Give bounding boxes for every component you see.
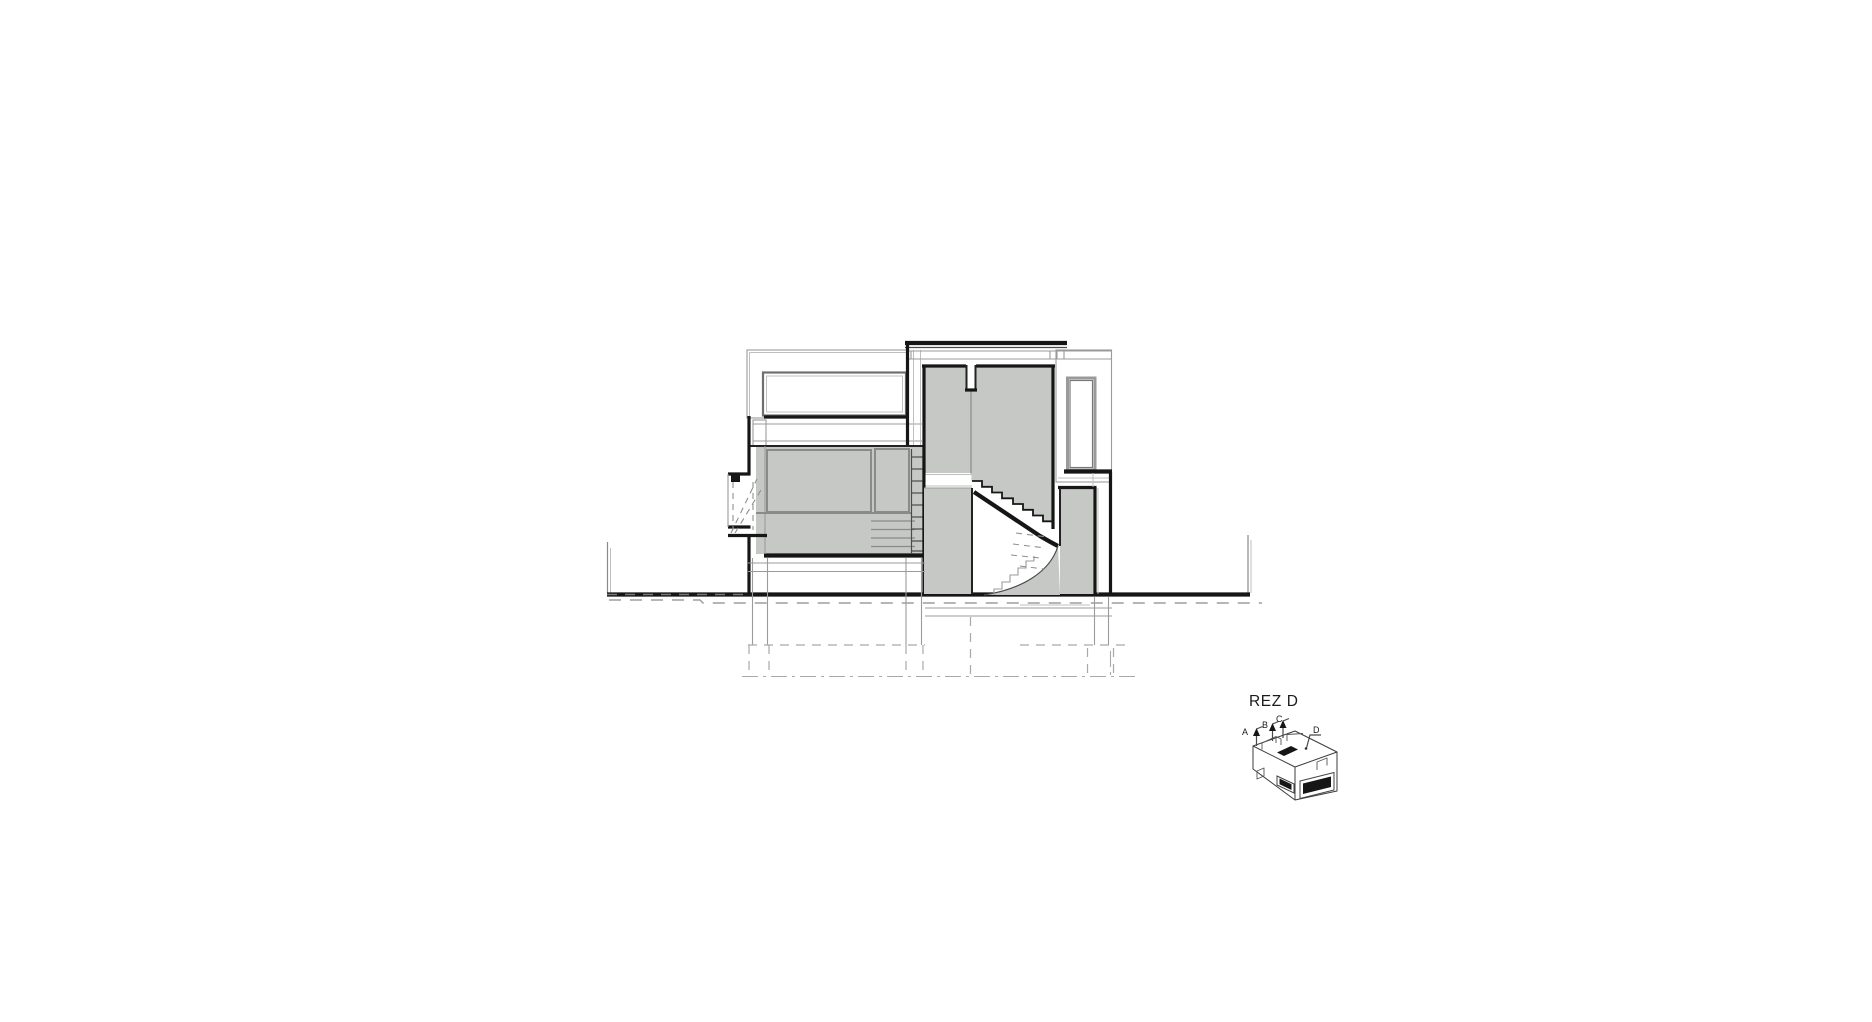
marker-label-a: A [1242,727,1248,737]
foundations-dashed [742,617,1135,677]
marker-label-d: D [1313,725,1320,735]
landing-opening [926,474,973,488]
key-plan-skylight [1277,746,1298,756]
right-tall-window [1068,378,1096,470]
lintel-cut [731,476,740,483]
left-clerestory-window [763,373,906,416]
drawing-title: REZ D [1249,693,1299,710]
marker-label-b: B [1262,720,1268,730]
drawing-sheet: REZ D A B [0,0,1872,1022]
architectural-section-drawing: REZ D A B [0,0,1872,1022]
left-volume-elevation [747,350,922,446]
tower-top-slot [965,362,977,390]
key-plan: A B C D [1242,714,1337,800]
terrain-dashed-line [609,600,1262,603]
spiral-wedge [984,546,1060,595]
section-arrow-a [1253,728,1260,736]
marker-label-c: C [1276,714,1283,724]
section-arrow-b [1269,723,1276,731]
left-room-section [750,446,925,556]
section-marker-a: A [1242,727,1263,747]
